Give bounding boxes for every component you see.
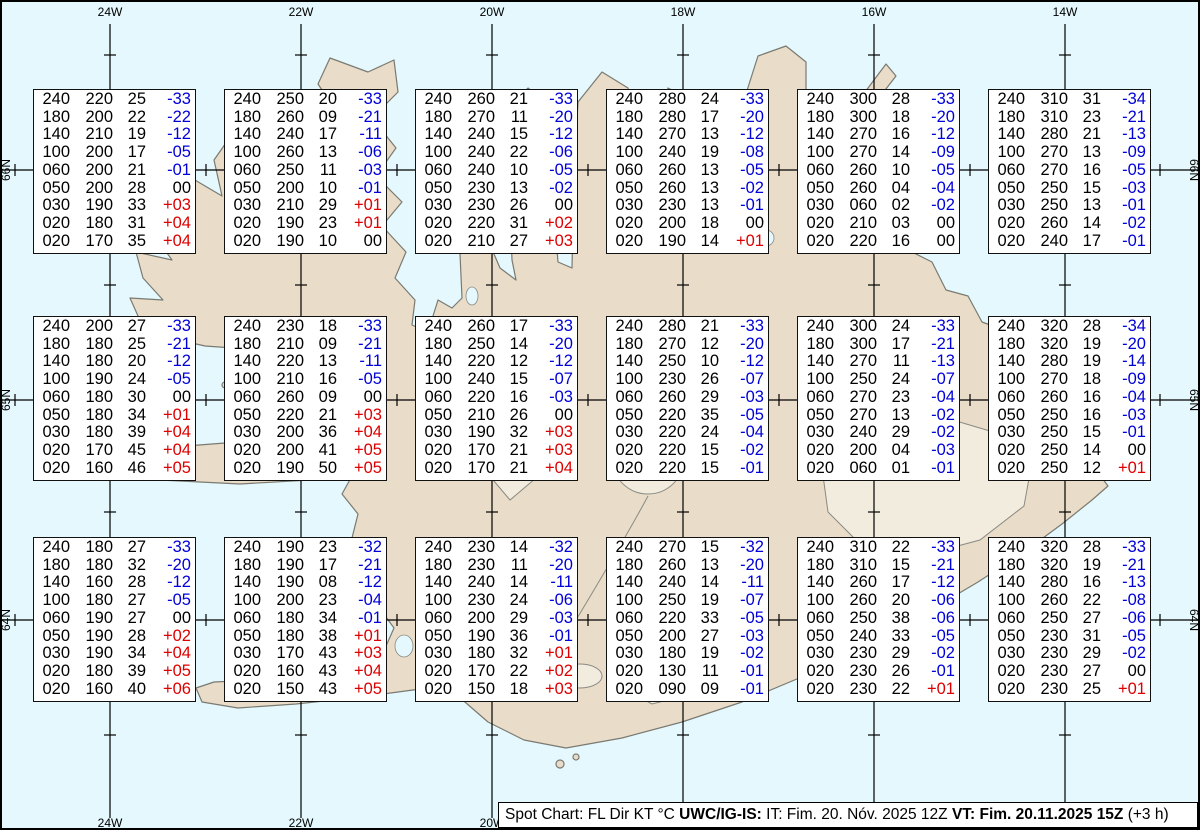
wind-speed-kt: 39 xyxy=(122,663,146,681)
flight-level: 180 xyxy=(229,336,261,354)
wind-speed-kt: 17 xyxy=(122,144,146,162)
flight-level: 050 xyxy=(38,407,70,425)
spot-row-fl050: 05027013-02 xyxy=(802,407,955,425)
wind-direction: 180 xyxy=(79,215,113,233)
wind-direction: 280 xyxy=(1034,574,1068,592)
wind-direction: 230 xyxy=(652,371,686,389)
spot-row-fl180: 18026013-20 xyxy=(611,557,764,575)
spot-row-fl020: 02022015-01 xyxy=(611,460,764,478)
spot-row-fl060: 0602600900 xyxy=(229,389,382,407)
temperature-c: -05 xyxy=(728,610,764,628)
flight-level: 240 xyxy=(420,539,452,557)
temperature-c: 00 xyxy=(346,233,382,251)
wind-direction: 270 xyxy=(652,539,686,557)
wind-speed-kt: 19 xyxy=(695,592,719,610)
spot-row-fl060: 06020029-03 xyxy=(420,610,573,628)
temperature-c: -02 xyxy=(919,645,955,663)
temperature-c: -20 xyxy=(155,557,191,575)
temperature-c: +04 xyxy=(155,442,191,460)
temperature-c: -03 xyxy=(537,389,573,407)
flight-level: 180 xyxy=(229,109,261,127)
spot-box-r2c1: 24020027-3318018025-2114018020-121001902… xyxy=(33,316,196,481)
wind-speed-kt: 21 xyxy=(313,407,337,425)
wind-direction: 240 xyxy=(461,126,495,144)
temperature-c: 00 xyxy=(537,197,573,215)
wind-direction: 220 xyxy=(843,233,877,251)
temperature-c: -01 xyxy=(1110,197,1146,215)
temperature-c: -05 xyxy=(728,162,764,180)
spot-box-r2c6: 24032028-3418032019-2014028019-141002701… xyxy=(988,316,1151,481)
wind-speed-kt: 16 xyxy=(886,233,910,251)
spot-row-fl020: 0202001800 xyxy=(611,215,764,233)
wind-direction: 270 xyxy=(843,126,877,144)
temperature-c: -02 xyxy=(728,180,764,198)
temperature-c: -01 xyxy=(1110,233,1146,251)
flight-level: 030 xyxy=(802,197,834,215)
flight-level: 140 xyxy=(993,353,1025,371)
wind-direction: 320 xyxy=(1034,539,1068,557)
spot-row-fl180: 18027012-20 xyxy=(611,336,764,354)
spot-row-fl180: 18021009-21 xyxy=(229,336,382,354)
spot-row-fl100: 10027018-09 xyxy=(993,371,1146,389)
wind-direction: 200 xyxy=(270,180,304,198)
temperature-c: -20 xyxy=(919,109,955,127)
flight-level: 060 xyxy=(993,610,1025,628)
spot-row-fl100: 10024019-08 xyxy=(611,144,764,162)
wind-direction: 160 xyxy=(79,574,113,592)
temperature-c: -07 xyxy=(728,592,764,610)
flight-level: 030 xyxy=(38,645,70,663)
wind-speed-kt: 35 xyxy=(122,233,146,251)
spot-row-fl140: 14028016-13 xyxy=(993,574,1146,592)
temperature-c: -33 xyxy=(537,91,573,109)
temperature-c: -33 xyxy=(728,91,764,109)
spot-row-fl240: 24018027-33 xyxy=(38,539,191,557)
wind-direction: 180 xyxy=(270,610,304,628)
wind-speed-kt: 21 xyxy=(695,318,719,336)
temperature-c: -12 xyxy=(155,574,191,592)
flight-level: 030 xyxy=(993,197,1025,215)
footer-segment-0: Spot Chart: FL Dir KT °C xyxy=(505,806,679,824)
wind-direction: 060 xyxy=(843,460,877,478)
wind-direction: 180 xyxy=(79,663,113,681)
wind-direction: 260 xyxy=(652,557,686,575)
spot-row-fl020: 0201901000 xyxy=(229,233,382,251)
temperature-c: -05 xyxy=(155,592,191,610)
meridian-label-bottom-22W: 22W xyxy=(289,817,314,829)
lake-thingvallavatn xyxy=(395,635,413,657)
spot-row-fl020: 0202201600 xyxy=(802,233,955,251)
flight-level: 240 xyxy=(38,91,70,109)
wind-direction: 250 xyxy=(843,371,877,389)
wind-speed-kt: 15 xyxy=(886,557,910,575)
wind-direction: 190 xyxy=(270,460,304,478)
wind-speed-kt: 22 xyxy=(886,539,910,557)
flight-level: 020 xyxy=(802,442,834,460)
temperature-c: -20 xyxy=(1110,336,1146,354)
temperature-c: +01 xyxy=(346,628,382,646)
spot-row-fl100: 10023024-06 xyxy=(420,592,573,610)
wind-direction: 260 xyxy=(843,180,877,198)
temperature-c: -21 xyxy=(155,336,191,354)
wind-speed-kt: 14 xyxy=(695,233,719,251)
spot-row-fl030: 03018039+04 xyxy=(38,424,191,442)
spot-row-fl240: 24023018-33 xyxy=(229,318,382,336)
spot-box-r3c3: 24023014-3218023011-2014024014-111002302… xyxy=(415,537,578,702)
wind-speed-kt: 18 xyxy=(1077,371,1101,389)
flight-level: 140 xyxy=(611,126,643,144)
temperature-c: -05 xyxy=(155,371,191,389)
wind-direction: 190 xyxy=(270,557,304,575)
spot-row-fl060: 06022016-03 xyxy=(420,389,573,407)
meridian-label-top-24W: 24W xyxy=(98,6,123,18)
wind-direction: 230 xyxy=(461,592,495,610)
spot-row-fl020: 02026014-02 xyxy=(993,215,1146,233)
flight-level: 020 xyxy=(802,233,834,251)
wind-direction: 260 xyxy=(843,162,877,180)
spot-row-fl240: 24019023-32 xyxy=(229,539,382,557)
wind-speed-kt: 18 xyxy=(695,215,719,233)
wind-direction: 240 xyxy=(843,628,877,646)
spot-row-fl060: 0601902700 xyxy=(38,610,191,628)
spot-row-fl180: 18025014-20 xyxy=(420,336,573,354)
wind-speed-kt: 09 xyxy=(313,109,337,127)
spot-row-fl050: 05023031-05 xyxy=(993,628,1146,646)
flight-level: 050 xyxy=(420,407,452,425)
flight-level: 020 xyxy=(420,442,452,460)
wind-direction: 190 xyxy=(79,371,113,389)
wind-direction: 200 xyxy=(461,610,495,628)
spot-row-fl180: 18030018-20 xyxy=(802,109,955,127)
temperature-c: 00 xyxy=(155,180,191,198)
flight-level: 180 xyxy=(38,336,70,354)
temperature-c: -01 xyxy=(155,162,191,180)
flight-level: 140 xyxy=(420,574,452,592)
temperature-c: +03 xyxy=(537,424,573,442)
wind-direction: 180 xyxy=(79,424,113,442)
spot-row-fl140: 14026017-12 xyxy=(802,574,955,592)
meridian-label-top-20W: 20W xyxy=(480,6,505,18)
wind-direction: 160 xyxy=(270,663,304,681)
wind-speed-kt: 28 xyxy=(122,180,146,198)
spot-row-fl050: 05019036-01 xyxy=(420,628,573,646)
spot-box-r2c2: 24023018-3318021009-2114022013-111002101… xyxy=(224,316,387,481)
spot-row-fl180: 18023011-20 xyxy=(420,557,573,575)
temperature-c: -02 xyxy=(919,407,955,425)
wind-direction: 150 xyxy=(270,681,304,699)
temperature-c: -02 xyxy=(728,645,764,663)
temperature-c: -21 xyxy=(346,336,382,354)
temperature-c: -11 xyxy=(728,574,764,592)
flight-level: 020 xyxy=(611,460,643,478)
wind-speed-kt: 24 xyxy=(695,424,719,442)
flight-level: 020 xyxy=(420,663,452,681)
spot-row-fl020: 02015018+03 xyxy=(420,681,573,699)
spot-row-fl180: 18026009-21 xyxy=(229,109,382,127)
temperature-c: +04 xyxy=(155,645,191,663)
spot-row-fl030: 03006002-02 xyxy=(802,197,955,215)
flight-level: 020 xyxy=(229,663,261,681)
flight-level: 240 xyxy=(611,91,643,109)
wind-speed-kt: 28 xyxy=(1077,318,1101,336)
lake-hop xyxy=(466,287,478,305)
wind-direction: 240 xyxy=(843,424,877,442)
spot-row-fl060: 06020021-01 xyxy=(38,162,191,180)
spot-row-fl180: 18027011-20 xyxy=(420,109,573,127)
wind-speed-kt: 50 xyxy=(313,460,337,478)
spot-row-fl030: 03018019-02 xyxy=(611,645,764,663)
temperature-c: +01 xyxy=(1110,460,1146,478)
wind-speed-kt: 45 xyxy=(122,442,146,460)
wind-direction: 220 xyxy=(461,353,495,371)
temperature-c: 00 xyxy=(537,407,573,425)
wind-direction: 200 xyxy=(652,628,686,646)
spot-row-fl020: 02016043+04 xyxy=(229,663,382,681)
wind-speed-kt: 11 xyxy=(695,663,719,681)
wind-speed-kt: 23 xyxy=(313,539,337,557)
temperature-c: -20 xyxy=(537,336,573,354)
temperature-c: +01 xyxy=(728,233,764,251)
temperature-c: -21 xyxy=(346,109,382,127)
temperature-c: -13 xyxy=(1110,126,1146,144)
wind-direction: 200 xyxy=(270,442,304,460)
temperature-c: -02 xyxy=(919,424,955,442)
spot-row-fl180: 18018025-21 xyxy=(38,336,191,354)
wind-direction: 210 xyxy=(461,407,495,425)
temperature-c: -32 xyxy=(728,539,764,557)
temperature-c: -01 xyxy=(1110,424,1146,442)
spot-row-fl020: 02019050+05 xyxy=(229,460,382,478)
spot-row-fl020: 02022031+02 xyxy=(420,215,573,233)
wind-speed-kt: 27 xyxy=(1077,610,1101,628)
temperature-c: +02 xyxy=(155,628,191,646)
spot-row-fl180: 18032019-20 xyxy=(993,336,1146,354)
spot-row-fl060: 06025027-06 xyxy=(993,610,1146,628)
temperature-c: +01 xyxy=(346,197,382,215)
wind-direction: 210 xyxy=(270,336,304,354)
temperature-c: -04 xyxy=(346,592,382,610)
wind-direction: 250 xyxy=(1034,442,1068,460)
wind-speed-kt: 01 xyxy=(886,460,910,478)
wind-speed-kt: 26 xyxy=(886,663,910,681)
flight-level: 020 xyxy=(229,681,261,699)
temperature-c: -33 xyxy=(728,318,764,336)
temperature-c: +05 xyxy=(155,663,191,681)
flight-level: 240 xyxy=(229,91,261,109)
wind-direction: 190 xyxy=(461,424,495,442)
wind-direction: 250 xyxy=(1034,424,1068,442)
flight-level: 240 xyxy=(611,539,643,557)
wind-direction: 180 xyxy=(79,539,113,557)
temperature-c: -11 xyxy=(346,353,382,371)
spot-row-fl030: 03023029-02 xyxy=(802,645,955,663)
spot-row-fl060: 06018034-01 xyxy=(229,610,382,628)
wind-speed-kt: 34 xyxy=(122,407,146,425)
flight-level: 060 xyxy=(38,389,70,407)
wind-speed-kt: 10 xyxy=(695,353,719,371)
temperature-c: +03 xyxy=(537,681,573,699)
wind-direction: 220 xyxy=(652,460,686,478)
flight-level: 030 xyxy=(229,424,261,442)
flight-level: 180 xyxy=(420,557,452,575)
spot-row-fl240: 24022025-33 xyxy=(38,91,191,109)
flight-level: 140 xyxy=(38,574,70,592)
temperature-c: +06 xyxy=(155,681,191,699)
wind-speed-kt: 28 xyxy=(1077,539,1101,557)
wind-speed-kt: 25 xyxy=(1077,681,1101,699)
wind-direction: 240 xyxy=(652,574,686,592)
temperature-c: +05 xyxy=(346,442,382,460)
temperature-c: -03 xyxy=(1110,407,1146,425)
spot-row-fl020: 02019014+01 xyxy=(611,233,764,251)
wind-speed-kt: 13 xyxy=(313,353,337,371)
wind-speed-kt: 16 xyxy=(313,371,337,389)
parallel-label-left-64N: 64N xyxy=(1,609,12,631)
temperature-c: +03 xyxy=(537,442,573,460)
wind-direction: 260 xyxy=(270,144,304,162)
flight-level: 060 xyxy=(611,162,643,180)
spot-row-fl030: 03022024-04 xyxy=(611,424,764,442)
wind-speed-kt: 13 xyxy=(1077,197,1101,215)
wind-direction: 220 xyxy=(270,407,304,425)
flight-level: 050 xyxy=(229,407,261,425)
spot-row-fl240: 24031022-33 xyxy=(802,539,955,557)
temperature-c: 00 xyxy=(1110,663,1146,681)
wind-direction: 220 xyxy=(652,424,686,442)
spot-row-fl060: 06026010-05 xyxy=(802,162,955,180)
spot-row-fl100: 10025019-07 xyxy=(611,592,764,610)
wind-speed-kt: 17 xyxy=(313,126,337,144)
wind-direction: 210 xyxy=(270,197,304,215)
temperature-c: +01 xyxy=(537,645,573,663)
spot-row-fl140: 14028021-13 xyxy=(993,126,1146,144)
wind-speed-kt: 17 xyxy=(313,557,337,575)
flight-level: 100 xyxy=(229,371,261,389)
flight-level: 140 xyxy=(38,126,70,144)
temperature-c: -06 xyxy=(1110,610,1146,628)
spot-row-fl140: 14028019-14 xyxy=(993,353,1146,371)
wind-speed-kt: 13 xyxy=(695,557,719,575)
wind-direction: 220 xyxy=(461,389,495,407)
wind-direction: 220 xyxy=(461,215,495,233)
flight-level: 180 xyxy=(611,557,643,575)
wind-direction: 270 xyxy=(1034,371,1068,389)
spot-row-fl050: 05025015-03 xyxy=(993,180,1146,198)
temperature-c: -05 xyxy=(346,371,382,389)
temperature-c: -33 xyxy=(155,318,191,336)
spot-row-fl100: 10020023-04 xyxy=(229,592,382,610)
temperature-c: -20 xyxy=(537,557,573,575)
flight-level: 140 xyxy=(229,574,261,592)
temperature-c: -12 xyxy=(537,126,573,144)
wind-direction: 260 xyxy=(843,592,877,610)
meridian-label-top-16W: 16W xyxy=(862,6,887,18)
wind-speed-kt: 25 xyxy=(122,91,146,109)
wind-direction: 200 xyxy=(79,180,113,198)
wind-speed-kt: 31 xyxy=(1077,628,1101,646)
temperature-c: -11 xyxy=(346,126,382,144)
wind-speed-kt: 13 xyxy=(886,407,910,425)
temperature-c: 00 xyxy=(919,233,955,251)
flight-level: 050 xyxy=(38,180,70,198)
wind-speed-kt: 11 xyxy=(504,557,528,575)
temperature-c: -03 xyxy=(1110,180,1146,198)
wind-direction: 270 xyxy=(843,353,877,371)
flight-level: 020 xyxy=(611,663,643,681)
spot-row-fl020: 02024017-01 xyxy=(993,233,1146,251)
spot-row-fl050: 0502002800 xyxy=(38,180,191,198)
wind-direction: 270 xyxy=(652,126,686,144)
wind-direction: 240 xyxy=(461,162,495,180)
wind-direction: 260 xyxy=(652,162,686,180)
wind-speed-kt: 38 xyxy=(313,628,337,646)
temperature-c: -01 xyxy=(919,460,955,478)
footer-segment-2: IT: Fim. 20. Nóv. 2025 12Z xyxy=(762,806,952,824)
flight-level: 030 xyxy=(802,645,834,663)
wind-direction: 310 xyxy=(843,557,877,575)
wind-direction: 320 xyxy=(1034,318,1068,336)
temperature-c: -21 xyxy=(1110,109,1146,127)
flight-level: 020 xyxy=(420,460,452,478)
spot-row-fl100: 10023026-07 xyxy=(611,371,764,389)
island-vestmannaeyjar xyxy=(573,754,579,760)
wind-direction: 170 xyxy=(461,460,495,478)
wind-direction: 190 xyxy=(79,628,113,646)
flight-level: 020 xyxy=(802,460,834,478)
footer-segment-4: (+3 h) xyxy=(1123,806,1168,824)
temperature-c: +01 xyxy=(919,681,955,699)
temperature-c: -09 xyxy=(1110,371,1146,389)
wind-speed-kt: 40 xyxy=(122,681,146,699)
temperature-c: -04 xyxy=(919,180,955,198)
flight-level: 030 xyxy=(229,197,261,215)
temperature-c: -01 xyxy=(346,180,382,198)
spot-row-fl100: 10026022-08 xyxy=(993,592,1146,610)
wind-speed-kt: 34 xyxy=(122,645,146,663)
wind-speed-kt: 13 xyxy=(695,180,719,198)
wind-speed-kt: 18 xyxy=(886,109,910,127)
flight-level: 100 xyxy=(38,144,70,162)
wind-direction: 260 xyxy=(461,318,495,336)
wind-speed-kt: 16 xyxy=(1077,574,1101,592)
wind-speed-kt: 23 xyxy=(1077,109,1101,127)
wind-speed-kt: 19 xyxy=(1077,353,1101,371)
flight-level: 100 xyxy=(993,592,1025,610)
temperature-c: +01 xyxy=(1110,681,1146,699)
flight-level: 100 xyxy=(420,144,452,162)
temperature-c: -20 xyxy=(728,336,764,354)
flight-level: 060 xyxy=(38,610,70,628)
flight-level: 020 xyxy=(993,233,1025,251)
wind-speed-kt: 24 xyxy=(886,371,910,389)
wind-direction: 230 xyxy=(461,557,495,575)
flight-level: 030 xyxy=(611,197,643,215)
wind-speed-kt: 14 xyxy=(504,574,528,592)
wind-speed-kt: 29 xyxy=(313,197,337,215)
temperature-c: -12 xyxy=(155,126,191,144)
flight-level: 030 xyxy=(38,424,70,442)
wind-speed-kt: 30 xyxy=(122,389,146,407)
wind-direction: 230 xyxy=(1034,663,1068,681)
spot-row-fl020: 02016046+05 xyxy=(38,460,191,478)
wind-speed-kt: 09 xyxy=(313,389,337,407)
wind-direction: 060 xyxy=(843,197,877,215)
wind-speed-kt: 17 xyxy=(1077,233,1101,251)
spot-row-fl060: 06025038-06 xyxy=(802,610,955,628)
flight-level: 240 xyxy=(229,539,261,557)
wind-direction: 130 xyxy=(652,663,686,681)
flight-level: 020 xyxy=(38,681,70,699)
